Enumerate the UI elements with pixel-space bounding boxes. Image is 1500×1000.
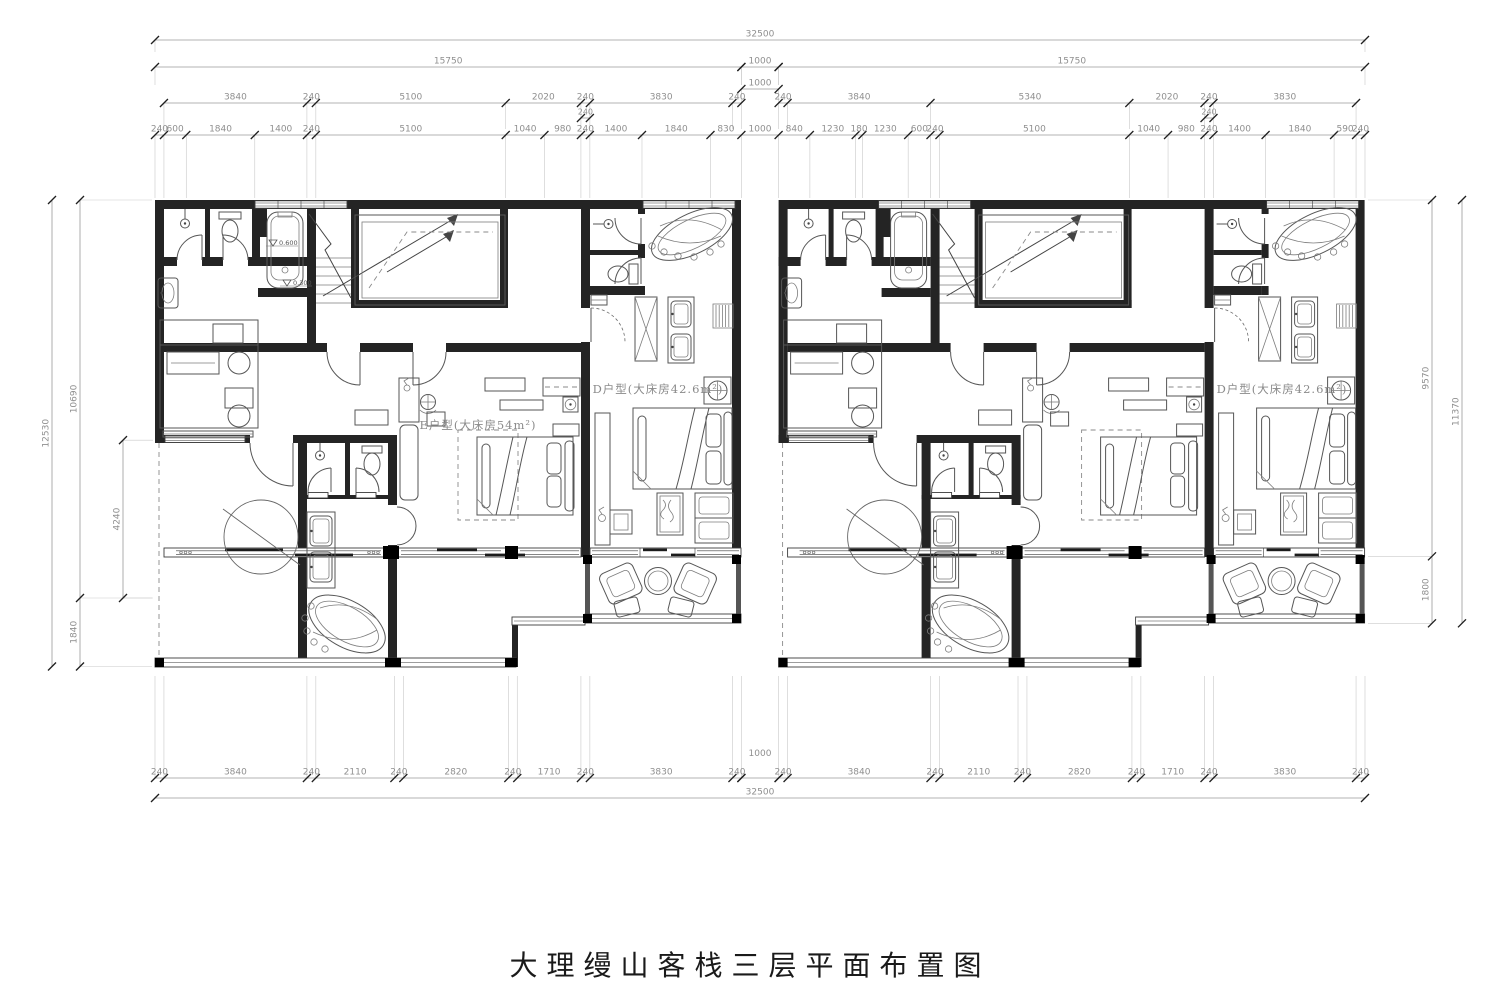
dim-label: 240	[774, 768, 791, 778]
floorplan-page: { "title": "大理缦山客栈三层平面布置图", "rooms": { "…	[0, 0, 1500, 1000]
dim-label: 240	[577, 93, 594, 103]
dim-label: 32500	[746, 788, 775, 798]
drawing-title: 大理缦山客栈三层平面布置图	[0, 944, 1500, 984]
room-label-e-left: E户型(大床房54m²)	[419, 418, 536, 432]
dim-label: 830	[717, 125, 734, 135]
dim-chain-right-outer: 11370	[1452, 196, 1467, 627]
dim-label: 1040	[1137, 125, 1160, 135]
dim-label: 1000	[749, 125, 772, 135]
dim-label: 240	[578, 108, 593, 117]
dim-chain-top35-right: 240	[1201, 108, 1218, 123]
dim-label: 1040	[514, 125, 537, 135]
dim-chain-left-outer: 12530	[42, 196, 57, 671]
room-label-d-left: D户型(大床房42.6m²)	[593, 382, 724, 396]
dim-label: 4240	[113, 507, 123, 530]
dim-label: 2820	[444, 768, 467, 778]
unit-right-plan	[779, 197, 1365, 667]
dim-label: 840	[786, 125, 803, 135]
dim-label: 240	[1014, 768, 1031, 778]
dim-label: 1400	[1228, 125, 1251, 135]
dim-label: 240	[303, 125, 320, 135]
dim-label: 5340	[1018, 93, 1041, 103]
dim-chain-left-inner: 106901840	[70, 196, 153, 671]
dim-label: 240	[774, 93, 791, 103]
dim-label: 240	[1201, 108, 1216, 117]
dim-label: 1800	[1422, 578, 1432, 601]
dim-label: 1840	[665, 125, 688, 135]
dim-chain-left-partial: 4240	[113, 436, 154, 602]
dim-label: 32500	[746, 30, 775, 40]
dim-label: 240	[728, 93, 745, 103]
dim-label: 240	[577, 125, 594, 135]
dim-label: 3830	[650, 768, 673, 778]
dim-label: 1000	[749, 749, 772, 759]
dim-label: 1710	[538, 768, 561, 778]
dim-label: 3830	[650, 93, 673, 103]
dim-label: 1400	[269, 125, 292, 135]
dim-label: 240	[151, 768, 168, 778]
dim-label: 980	[1178, 125, 1195, 135]
dim-label: 1710	[1161, 768, 1184, 778]
dim-label: 2820	[1068, 768, 1091, 778]
dim-label: 3840	[848, 768, 871, 778]
dim-chain-top4: 2406001840140024051001040980240140018408…	[151, 125, 1370, 199]
dim-label: 1000	[749, 57, 772, 67]
dim-label: 3840	[224, 768, 247, 778]
dim-chain-bottom-right: 24038402402110240282024017102403830240	[774, 676, 1369, 782]
dim-label: 240	[303, 93, 320, 103]
dim-label: 12530	[42, 419, 52, 448]
dim-label: 1840	[209, 125, 232, 135]
dim-label: 15750	[1057, 57, 1086, 67]
dim-label: 1840	[70, 621, 80, 644]
dim-label: 15750	[434, 57, 463, 67]
dim-label: 980	[554, 125, 571, 135]
dim-label: 240	[1200, 768, 1217, 778]
dim-label: 3830	[1273, 93, 1296, 103]
room-label-d-right: D户型(大床房42.6m²)	[1217, 382, 1348, 396]
level-label-lower: 0.300	[293, 279, 312, 287]
dim-label: 1400	[604, 125, 627, 135]
dim-label: 5100	[399, 125, 422, 135]
dim-chain-bottom-left: 24038402402110240282024017102403830240	[151, 676, 746, 782]
dim-label: 240	[1352, 125, 1369, 135]
dim-label: 10690	[70, 384, 80, 413]
floor-plan-canvas: 32500 15750 1000 1000 15750 384024051002…	[0, 0, 1500, 1000]
dim-label: 240	[303, 768, 320, 778]
dim-label: 240	[390, 768, 407, 778]
dim-label: 240	[504, 768, 521, 778]
dim-label: 1840	[1288, 125, 1311, 135]
dim-label: 11370	[1452, 397, 1462, 426]
dim-label: 9570	[1422, 366, 1432, 389]
dim-label: 240	[577, 768, 594, 778]
dim-chain-right-inner: 95701800	[1368, 196, 1436, 627]
dim-label: 240	[1200, 93, 1217, 103]
dim-label: 180	[850, 125, 867, 135]
dim-label: 600	[167, 125, 184, 135]
dim-chain-top35-left: 240	[577, 108, 594, 123]
dim-chain-top2-right: 15750	[775, 57, 1369, 86]
dim-label: 5100	[1023, 125, 1046, 135]
dim-label: 3840	[224, 93, 247, 103]
dim-label: 2110	[344, 768, 367, 778]
dim-label: 2020	[532, 93, 555, 103]
dim-label: 5100	[399, 93, 422, 103]
dim-label: 240	[1128, 768, 1145, 778]
dim-label: 240	[926, 768, 943, 778]
dim-label: 2110	[967, 768, 990, 778]
dim-chain-bottom-total: 32500	[151, 788, 1369, 803]
dim-label: 1000	[749, 79, 772, 89]
level-label-upper: 0.600	[279, 239, 298, 247]
dim-chain-top3-left: 3840240510020202403830240	[160, 93, 746, 130]
dim-label: 1230	[821, 125, 844, 135]
dim-chain-top-total: 32500	[151, 30, 1369, 53]
dim-label: 2020	[1155, 93, 1178, 103]
dim-label: 1230	[874, 125, 897, 135]
dim-label: 240	[1200, 125, 1217, 135]
dim-label: 240	[1352, 768, 1369, 778]
dim-chain-top2-left: 15750	[151, 57, 745, 86]
dim-label: 3830	[1273, 768, 1296, 778]
dim-label: 3840	[848, 93, 871, 103]
dim-label: 240	[926, 125, 943, 135]
